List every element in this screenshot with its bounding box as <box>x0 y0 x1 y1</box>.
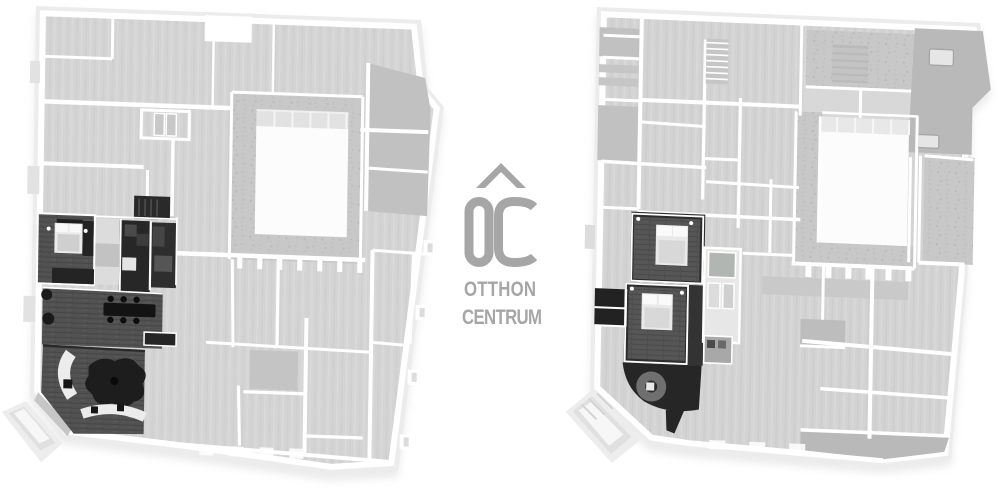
svg-text:OTTHON: OTTHON <box>464 278 536 301</box>
svg-text:CENTRUM: CENTRUM <box>462 306 542 329</box>
